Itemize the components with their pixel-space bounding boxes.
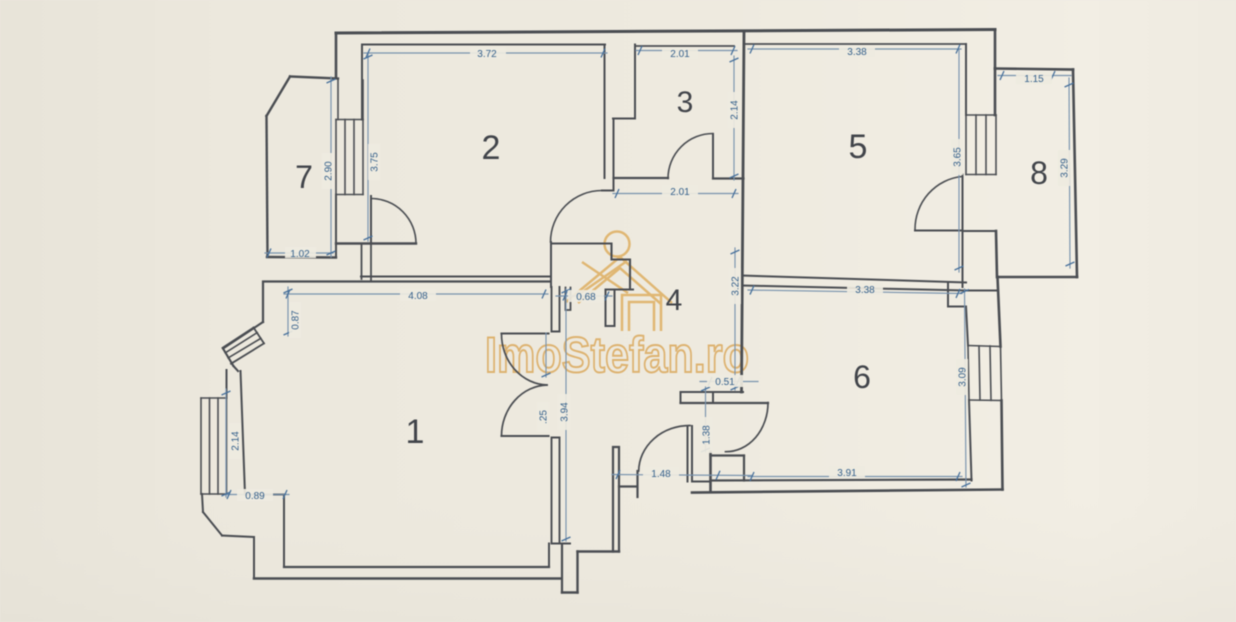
svg-text:2.14: 2.14 <box>231 431 242 451</box>
svg-text:3.38: 3.38 <box>847 47 867 58</box>
svg-text:4: 4 <box>666 284 683 317</box>
svg-text:0.51: 0.51 <box>715 377 735 388</box>
svg-text:3.65: 3.65 <box>953 147 964 167</box>
svg-text:1.15: 1.15 <box>1024 74 1044 85</box>
svg-text:0.87: 0.87 <box>291 310 302 330</box>
svg-text:2.90: 2.90 <box>324 161 335 181</box>
svg-text:0.68: 0.68 <box>576 292 596 303</box>
svg-text:7: 7 <box>295 159 313 195</box>
svg-text:1: 1 <box>406 413 425 451</box>
svg-text:3.94: 3.94 <box>560 402 571 422</box>
svg-text:3.38: 3.38 <box>855 285 875 296</box>
svg-text:2: 2 <box>482 129 501 167</box>
svg-text:6: 6 <box>853 359 871 395</box>
svg-text:2.14: 2.14 <box>730 100 741 120</box>
svg-text:1.38: 1.38 <box>702 425 713 445</box>
svg-text:8: 8 <box>1030 155 1048 191</box>
svg-text:3.22: 3.22 <box>731 276 742 296</box>
svg-text:ImoStefan.ro: ImoStefan.ro <box>485 327 749 383</box>
svg-text:4.08: 4.08 <box>408 291 428 302</box>
svg-text:3: 3 <box>677 86 694 119</box>
svg-text:3.09: 3.09 <box>958 367 969 387</box>
svg-text:2.01: 2.01 <box>670 49 690 60</box>
svg-text:.25: .25 <box>539 410 550 424</box>
svg-text:0.89: 0.89 <box>245 491 265 502</box>
svg-text:3.29: 3.29 <box>1060 158 1071 178</box>
svg-text:3.72: 3.72 <box>477 49 497 60</box>
svg-text:5: 5 <box>849 128 868 166</box>
svg-text:3.75: 3.75 <box>370 152 381 172</box>
svg-text:2.01: 2.01 <box>670 187 690 198</box>
svg-text:1.02: 1.02 <box>290 249 310 260</box>
svg-text:1.48: 1.48 <box>651 469 671 480</box>
svg-text:3.91: 3.91 <box>837 468 857 479</box>
